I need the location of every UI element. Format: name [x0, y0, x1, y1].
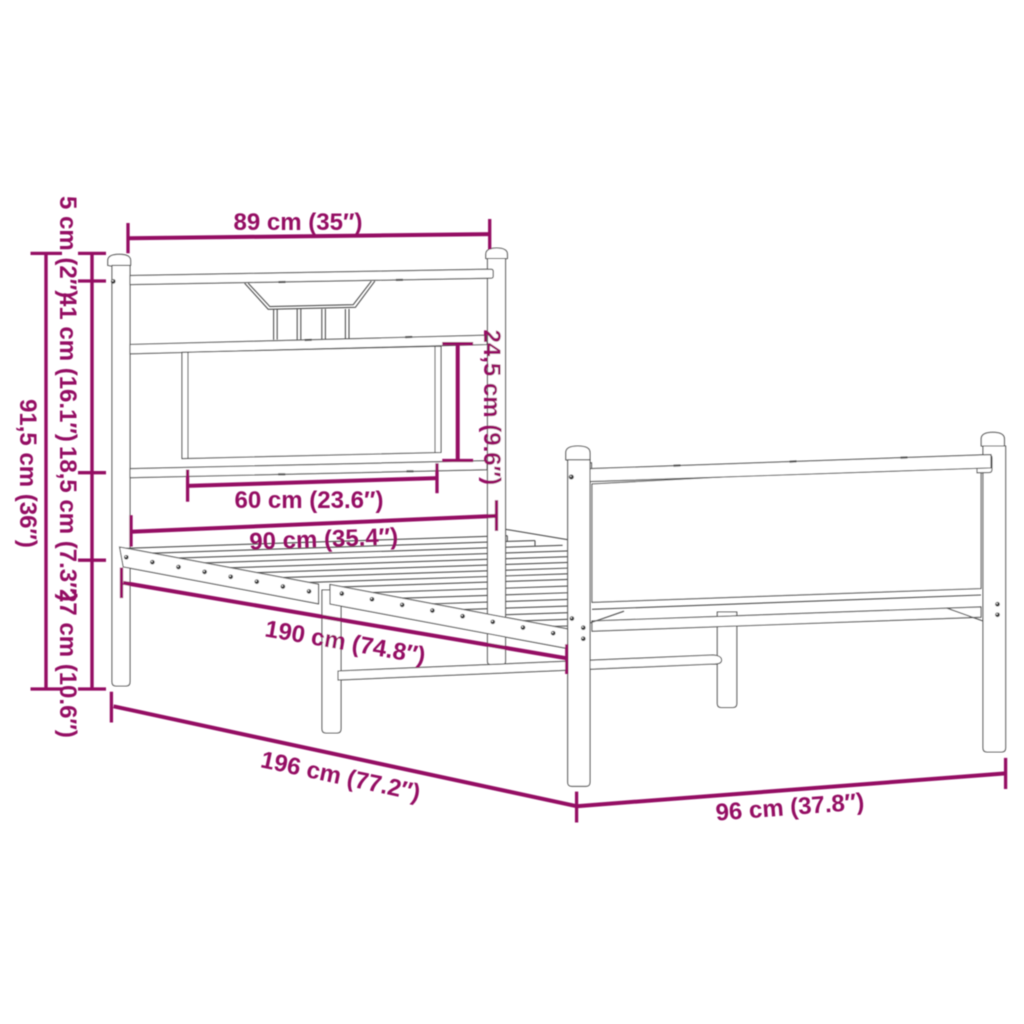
svg-text:91,5 cm (36″): 91,5 cm (36″) [14, 399, 41, 548]
svg-text:41 cm (16.1″): 41 cm (16.1″) [54, 293, 81, 442]
svg-text:5 cm (2″): 5 cm (2″) [54, 196, 81, 298]
svg-text:89 cm (35″): 89 cm (35″) [234, 209, 363, 236]
svg-text:190 cm (74.8″): 190 cm (74.8″) [263, 615, 427, 669]
svg-text:60 cm (23.6″): 60 cm (23.6″) [235, 487, 384, 514]
svg-text:18,5 cm (7.3″): 18,5 cm (7.3″) [54, 446, 81, 602]
svg-text:24,5 cm (9.6″): 24,5 cm (9.6″) [478, 330, 505, 486]
svg-text:27 cm (10.6″): 27 cm (10.6″) [54, 589, 81, 738]
svg-text:90 cm (35.4″): 90 cm (35.4″) [249, 523, 399, 555]
